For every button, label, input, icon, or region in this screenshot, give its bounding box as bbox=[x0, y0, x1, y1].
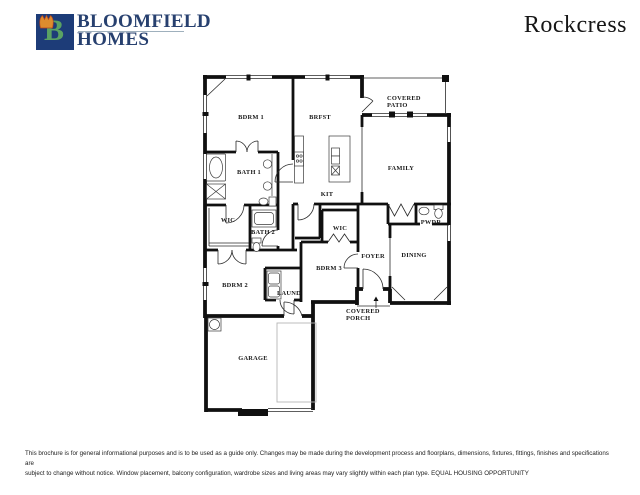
disclaimer-line-2: subject to change without notice. Window… bbox=[25, 469, 615, 479]
room-labels: BDRM 1 BRFST COVERED PATIO FAMILY BATH 1… bbox=[221, 95, 442, 362]
room-label-foyer: FOYER bbox=[361, 253, 385, 260]
room-label-bath1: BATH 1 bbox=[237, 169, 261, 176]
room-label-wic-left: WIC bbox=[221, 217, 235, 224]
room-label-bdrm3: BDRM 3 bbox=[316, 265, 342, 272]
room-label-covered-patio-1: COVERED bbox=[387, 95, 421, 102]
room-label-covered-porch-1: COVERED bbox=[346, 308, 380, 315]
room-label-kit: KIT bbox=[321, 191, 334, 198]
room-label-laund: LAUND bbox=[277, 290, 301, 297]
exterior-walls bbox=[203, 75, 451, 416]
room-label-covered-patio-2: PATIO bbox=[387, 102, 408, 109]
brochure-page: B BLOOMFIELD HOMES Rockcress bbox=[0, 0, 640, 495]
room-label-dining: DINING bbox=[401, 252, 426, 259]
room-label-bdrm2: BDRM 2 bbox=[222, 282, 248, 289]
room-label-family: FAMILY bbox=[388, 165, 414, 172]
room-label-garage: GARAGE bbox=[238, 355, 268, 362]
room-label-pwdr: PWDR bbox=[421, 219, 442, 226]
room-label-wic-right: WIC bbox=[333, 225, 347, 232]
disclaimer: This brochure is for general information… bbox=[25, 449, 615, 479]
floor-plan: BDRM 1 BRFST COVERED PATIO FAMILY BATH 1… bbox=[0, 0, 640, 495]
room-label-bdrm1: BDRM 1 bbox=[238, 114, 264, 121]
room-label-brfst: BRFST bbox=[309, 114, 331, 121]
room-label-bath2: BATH 2 bbox=[251, 229, 275, 236]
disclaimer-line-1: This brochure is for general information… bbox=[25, 449, 615, 469]
room-label-covered-porch-2: PORCH bbox=[346, 315, 370, 322]
